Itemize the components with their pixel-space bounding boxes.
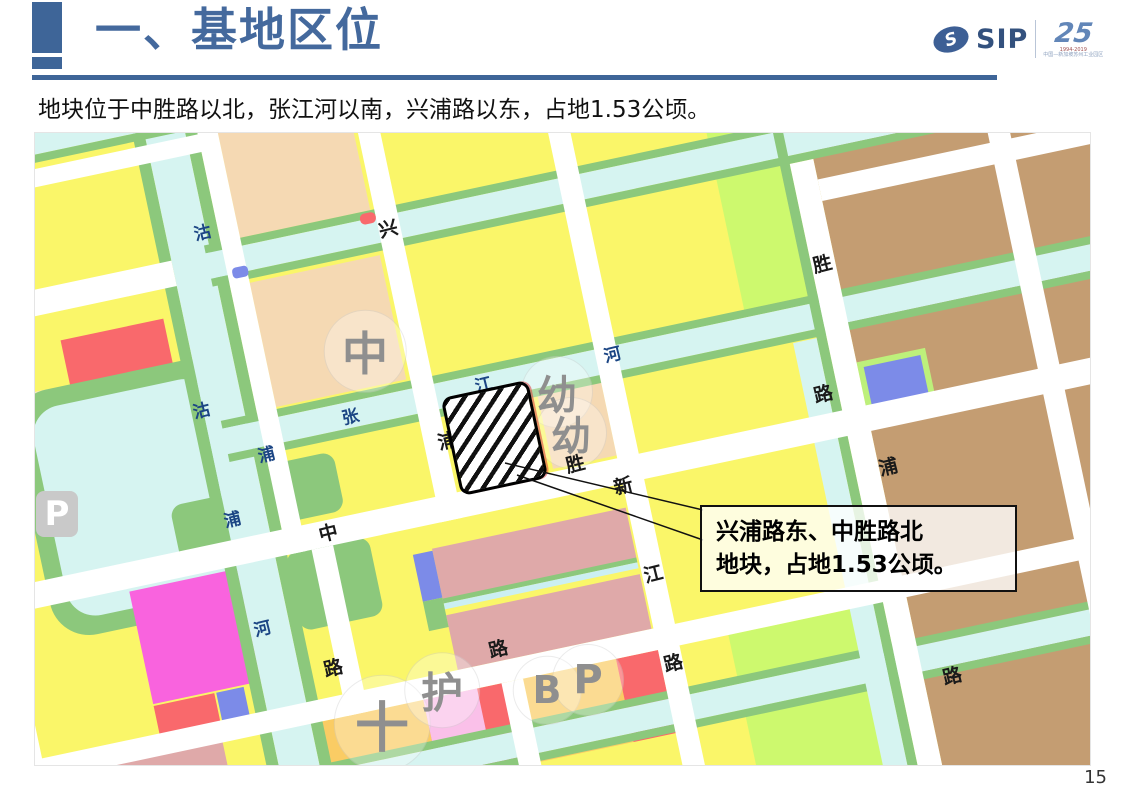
page-number: 15 [1084, 767, 1107, 788]
facility-label: P [573, 657, 602, 703]
facility-label: P [36, 491, 78, 537]
logo-divider [1035, 20, 1036, 58]
callout-line1: 兴浦路东、中胜路北 [716, 516, 1001, 549]
sip-logo-s-glyph: S [942, 28, 960, 51]
title-underline [32, 75, 997, 80]
page-title: 一、基地区位 [95, 2, 383, 58]
site-location-map: 兴浦路东、中胜路北 地块，占地1.53公顷。 兴浦路中胜路胜浦路新江路路沽沽浦浦… [35, 133, 1090, 765]
anniversary-tagline: 中国—新加坡苏州工业园区 [1043, 53, 1103, 58]
title-accent-square [32, 2, 62, 53]
anniversary-mark: 25 1994-2019 中国—新加坡苏州工业园区 [1043, 20, 1103, 58]
facility-label: 护 [421, 660, 463, 721]
slide-subtitle: 地块位于中胜路以北，张江河以南，兴浦路以东，占地1.53公顷。 [38, 90, 710, 124]
sip-logo-s-icon: S [930, 22, 972, 57]
sip-logo-text: SIP [976, 24, 1028, 55]
callout-line2: 地块，占地1.53公顷。 [716, 549, 1001, 582]
anniversary-25: 25 [1053, 20, 1094, 47]
sip-logo: S SIP 25 1994-2019 中国—新加坡苏州工业园区 [933, 14, 1109, 64]
title-accent-bar [32, 57, 62, 69]
facility-label: 十 [355, 684, 409, 763]
facility-label: 幼 [551, 404, 591, 462]
site-callout-box: 兴浦路东、中胜路北 地块，占地1.53公顷。 [700, 505, 1017, 592]
facility-label: B [533, 668, 562, 712]
facility-label: 中 [342, 318, 388, 384]
